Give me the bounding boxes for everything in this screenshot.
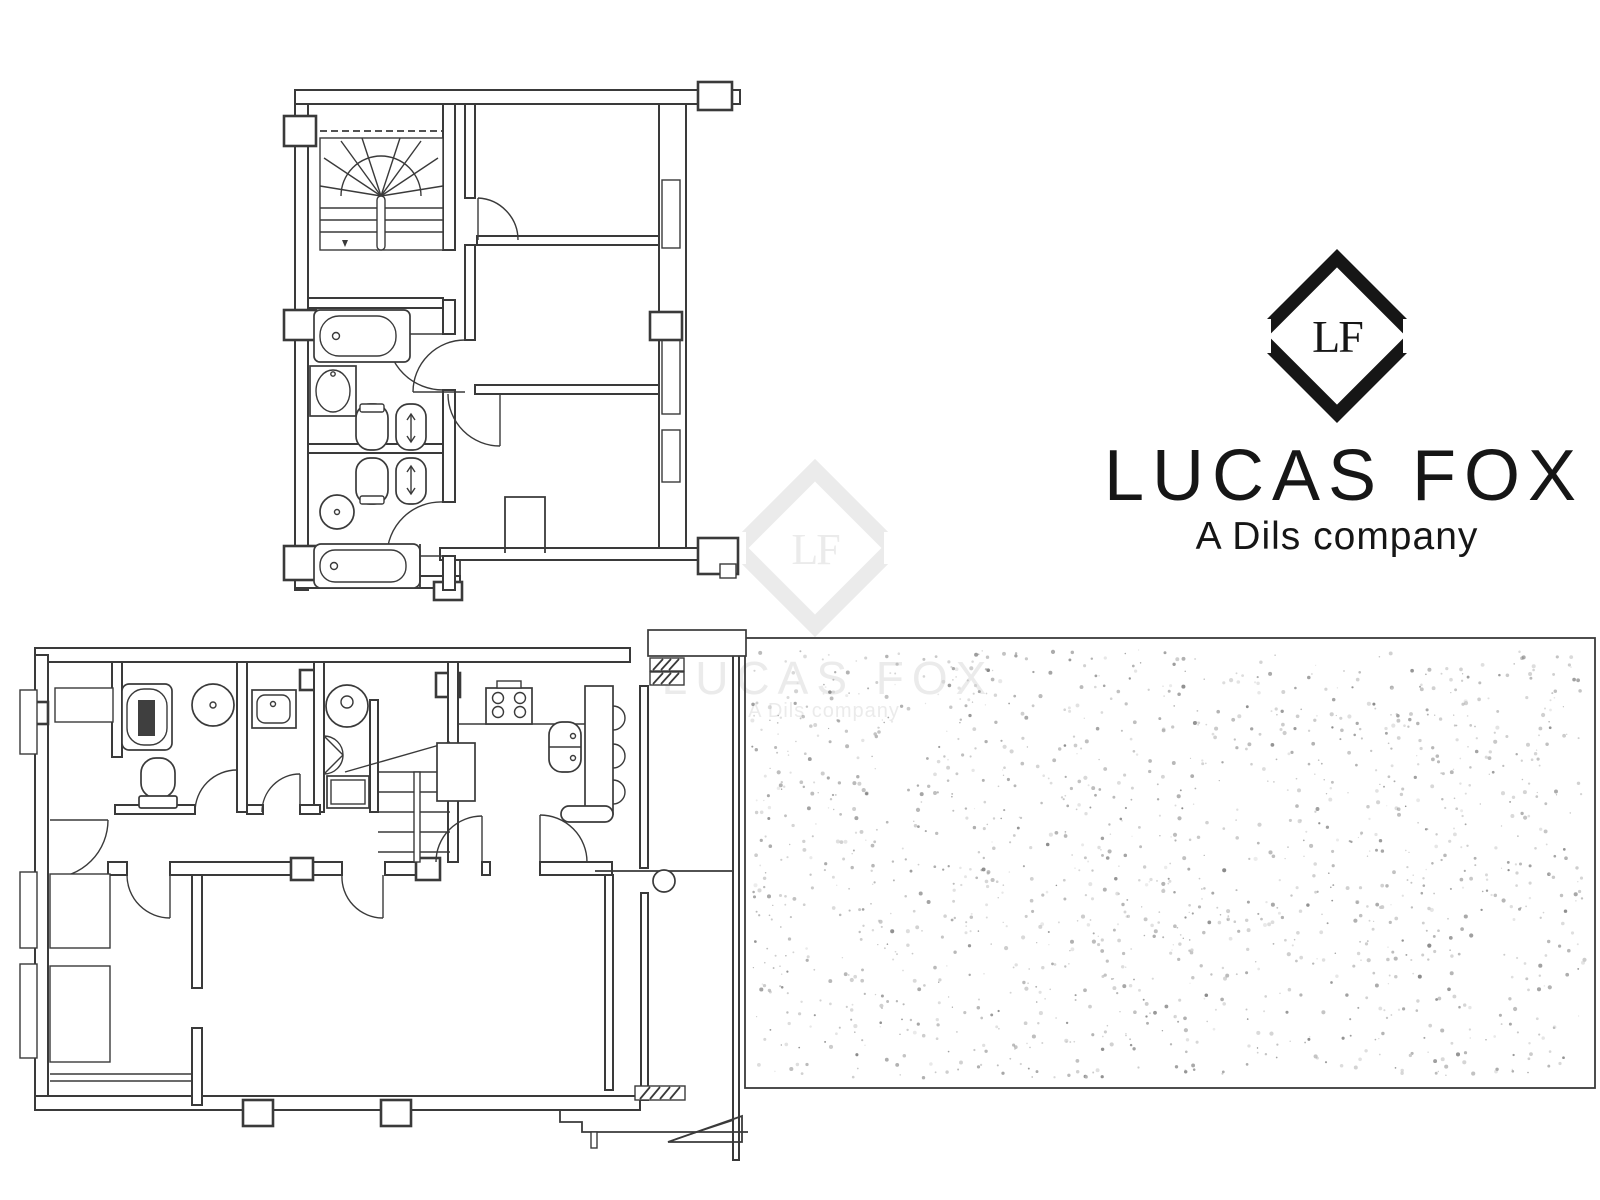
stipple-dot (1519, 862, 1522, 865)
stipple-dot (1093, 932, 1095, 934)
stipple-dot (1267, 780, 1269, 782)
stipple-dot (1469, 1028, 1471, 1030)
stipple-dot (1009, 871, 1011, 873)
stipple-dot (884, 947, 886, 949)
stipple-dot (1453, 832, 1457, 836)
stipple-dot (1512, 796, 1515, 799)
stipple-dot (992, 670, 993, 671)
stipple-dot (786, 856, 788, 858)
stool-icon (613, 744, 625, 768)
stipple-dot (1145, 1002, 1149, 1006)
stipple-dot (1571, 931, 1574, 934)
stipple-dot (1485, 1039, 1486, 1040)
stipple-dot (1068, 963, 1069, 964)
stipple-dot (1029, 1047, 1031, 1049)
stipple-dot (1190, 774, 1194, 778)
stipple-dot (1161, 882, 1165, 886)
stipple-dot (1562, 734, 1566, 738)
stipple-dot (1458, 953, 1461, 956)
stipple-dot (853, 975, 857, 979)
stipple-dot (1420, 747, 1423, 750)
stipple-dot (769, 914, 771, 916)
stipple-dot (1515, 753, 1517, 755)
stipple-dot (1088, 882, 1092, 886)
stipple-dot (1191, 1063, 1195, 1067)
stipple-dot (1058, 747, 1061, 750)
stipple-dot (1246, 1063, 1249, 1066)
stipple-dot (1426, 708, 1429, 711)
stipple-dot (1287, 789, 1289, 791)
stipple-dot (777, 770, 781, 774)
stipple-dot (858, 908, 861, 911)
stipple-dot (817, 735, 819, 737)
stipple-dot (1064, 795, 1066, 797)
stipple-dot (936, 1018, 939, 1021)
stipple-dot (998, 785, 1000, 787)
stipple-dot (1540, 917, 1542, 919)
stipple-dot (1194, 788, 1196, 790)
stipple-dot (1013, 695, 1016, 698)
stipple-dot (1379, 906, 1382, 909)
stipple-dot (768, 705, 772, 709)
stipple-dot (1435, 1072, 1438, 1075)
stipple-dot (1177, 927, 1179, 929)
stipple-dot (1001, 1072, 1004, 1075)
stipple-dot (1133, 720, 1137, 724)
stipple-dot (1414, 776, 1417, 779)
stipple-dot (1056, 885, 1058, 887)
stipple-dot (1478, 681, 1481, 684)
stipple-dot (983, 973, 985, 975)
stipple-dot (984, 1050, 987, 1053)
stipple-dot (1098, 936, 1099, 937)
stipple-dot (848, 974, 849, 975)
stipple-dot (1520, 812, 1523, 815)
stipple-dot (1175, 805, 1177, 807)
stipple-dot (978, 851, 980, 853)
stipple-dot (1183, 1016, 1187, 1020)
stipple-dot (943, 914, 947, 918)
stipple-dot (802, 848, 806, 852)
stipple-dot (1229, 937, 1233, 941)
stipple-dot (753, 883, 757, 887)
stipple-dot (1462, 673, 1463, 674)
stipple-dot (1267, 922, 1271, 926)
stipple-dot (836, 885, 837, 886)
stipple-dot (1013, 834, 1016, 837)
stipple-dot (1101, 837, 1104, 840)
stipple-dot (1529, 882, 1532, 885)
stipple-dot (830, 798, 832, 800)
stipple-dot (1461, 680, 1463, 682)
appliance (327, 776, 369, 808)
stipple-dot (1401, 787, 1404, 790)
stipple-dot (973, 693, 975, 695)
stipple-dot (1212, 733, 1215, 736)
stipple-dot (1318, 822, 1320, 824)
stipple-dot (837, 719, 840, 722)
stipple-dot (977, 1065, 980, 1068)
stipple-dot (1427, 958, 1429, 960)
stipple-dot (1482, 891, 1484, 893)
stipple-dot (1342, 1037, 1345, 1040)
stipple-dot (1054, 963, 1057, 966)
stipple-dot (1226, 909, 1230, 913)
stipple-dot (766, 948, 768, 950)
stipple-dot (872, 883, 874, 885)
stipple-dot (1428, 1024, 1432, 1028)
stipple-dot (973, 826, 976, 829)
stipple-dot (784, 814, 787, 817)
stipple-dot (1387, 946, 1388, 947)
stipple-dot (1031, 1076, 1033, 1078)
stipple-dot (862, 788, 866, 792)
stipple-dot (1026, 1043, 1028, 1045)
stipple-dot (1376, 800, 1380, 804)
stipple-dot (1225, 974, 1229, 978)
logo-diamond-gap (1245, 319, 1271, 353)
stipple-dot (1125, 1035, 1127, 1037)
stipple-dot (1168, 878, 1170, 880)
stipple-dot (1490, 894, 1492, 896)
stipple-dot (1465, 823, 1467, 825)
stipple-dot (1236, 973, 1238, 975)
stipple-dot (1103, 685, 1106, 688)
stipple-dot (1163, 888, 1165, 890)
stipple-dot (1374, 833, 1377, 836)
stipple-dot (829, 1045, 833, 1049)
stipple-dot (1174, 839, 1176, 841)
stipple-dot (1278, 912, 1281, 915)
stipple-dot (1357, 952, 1360, 955)
stipple-dot (1190, 758, 1191, 759)
stipple-dot (1417, 822, 1419, 824)
stipple-dot (1547, 1065, 1550, 1068)
stipple-dot (1453, 769, 1454, 770)
stipple-dot (1186, 1038, 1189, 1041)
stipple-dot (813, 969, 815, 971)
stipple-dot (764, 962, 766, 964)
stipple-dot (784, 895, 787, 898)
stipple-dot (913, 1031, 917, 1035)
stipple-dot (1444, 1065, 1448, 1069)
stipple-dot (990, 943, 991, 944)
stipple-dot (1511, 976, 1514, 979)
stipple-dot (1197, 721, 1200, 724)
stipple-dot (756, 701, 759, 704)
stipple-dot (978, 930, 979, 931)
stipple-dot (796, 1063, 799, 1066)
stipple-dot (1459, 668, 1463, 672)
stipple-dot (935, 1071, 937, 1073)
stipple-dot (935, 655, 938, 658)
stipple-dot (853, 850, 855, 852)
stipple-dot (790, 916, 792, 918)
stipple-dot (781, 973, 782, 974)
stipple-dot (755, 811, 758, 814)
watermark: LF LUCAS FOX A Dils company (662, 470, 995, 722)
stipple-dot (1313, 719, 1316, 722)
stipple-dot (1138, 989, 1141, 992)
stipple-dot (871, 864, 875, 868)
stipple-dot (1339, 738, 1341, 740)
stipple-dot (1369, 850, 1370, 851)
stipple-dot (1116, 690, 1120, 694)
stipple-dot (850, 1019, 852, 1021)
stipple-dot (959, 867, 962, 870)
stipple-dot (1130, 799, 1132, 801)
stipple-dot (1065, 831, 1067, 833)
stipple-dot (1394, 975, 1397, 978)
stipple-dot (1101, 1048, 1104, 1051)
stipple-dot (1350, 841, 1352, 843)
stipple-dot (1581, 961, 1585, 965)
stipple-dot (1041, 1042, 1043, 1044)
stipple-dot (1427, 714, 1429, 716)
stipple-dot (951, 796, 953, 798)
stipple-dot (1145, 1015, 1147, 1017)
stipple-dot (1070, 787, 1073, 790)
stipple-dot (991, 678, 995, 682)
stipple-dot (1367, 940, 1369, 942)
stipple-dot (1051, 963, 1054, 966)
stipple-dot (1356, 678, 1360, 682)
staircase (320, 104, 455, 250)
stipple-dot (1554, 790, 1558, 794)
stipple-dot (1318, 759, 1320, 761)
stipple-dot (1263, 923, 1267, 927)
stipple-dot (822, 658, 824, 660)
stool-icon (613, 706, 625, 730)
stipple-dot (760, 729, 762, 731)
stipple-dot (1350, 1035, 1352, 1037)
stipple-dot (1038, 925, 1042, 929)
stipple-dot (857, 782, 861, 786)
stipple-dot (1288, 988, 1292, 992)
stipple-dot (1565, 973, 1569, 977)
stipple-dot (845, 744, 849, 748)
stipple-dot (1564, 856, 1568, 860)
stipple-dot (955, 667, 959, 671)
stipple-dot (865, 792, 868, 795)
stipple-dot (1314, 773, 1315, 774)
stipple-dot (827, 776, 830, 779)
stipple-dot (1281, 916, 1284, 919)
stipple-dot (1200, 964, 1203, 967)
stipple-dot (925, 830, 927, 832)
stipple-dot (896, 1000, 898, 1002)
stipple-dot (1331, 726, 1333, 728)
stipple-dot (1437, 929, 1440, 932)
stipple-dot (898, 652, 901, 655)
stipple-dot (1152, 978, 1154, 980)
stipple-dot (1462, 887, 1464, 889)
stipple-dot (1430, 908, 1434, 912)
stipple-dot (1281, 690, 1285, 694)
stipple-dot (1528, 782, 1530, 784)
stipple-dot (1517, 835, 1519, 837)
stipple-dot (1469, 933, 1473, 937)
stipple-dot (1458, 1006, 1461, 1009)
stipple-dot (1321, 1010, 1325, 1014)
stipple-dot (1375, 769, 1377, 771)
stipple-dot (1450, 1042, 1453, 1045)
stipple-dot (1391, 1014, 1393, 1016)
stipple-dot (1549, 726, 1552, 729)
stipple-dot (951, 793, 953, 795)
stipple-dot (945, 1070, 948, 1073)
stipple-dot (1130, 1044, 1132, 1046)
stipple-dot (752, 891, 755, 894)
stipple-dot (1513, 663, 1515, 665)
stipple-dot (1547, 940, 1550, 943)
stipple-dot (1101, 938, 1104, 941)
stipple-dot (1281, 710, 1284, 713)
stipple-dot (953, 883, 955, 885)
stipple-dot (1235, 819, 1236, 820)
stipple-dot (1516, 957, 1518, 959)
stipple-dot (1507, 869, 1509, 871)
stipple-dot (1211, 892, 1214, 895)
stipple-dot (1512, 1070, 1515, 1073)
stipple-dot (1041, 894, 1044, 897)
stipple-dot (1153, 1011, 1157, 1015)
stipple-dot (753, 967, 754, 968)
stipple-dot (1367, 958, 1371, 962)
stipple-dot (1489, 750, 1492, 753)
stipple-dot (1541, 713, 1545, 717)
stipple-dot (1183, 938, 1184, 939)
stipple-dot (1316, 715, 1318, 717)
stipple-dot (803, 903, 806, 906)
stipple-dot (994, 694, 997, 697)
stipple-dot (1311, 742, 1315, 746)
stipple-dot (1539, 828, 1542, 831)
stipple-dot (1190, 948, 1193, 951)
stipple-dot (1366, 805, 1369, 808)
stipple-dot (974, 808, 975, 809)
stipple-dot (1182, 657, 1186, 661)
stipple-dot (1292, 944, 1294, 946)
stipple-dot (787, 992, 789, 994)
stipple-dot (1536, 749, 1537, 750)
stipple-dot (1101, 1075, 1104, 1078)
stipple-dot (1237, 714, 1241, 718)
stipple-dot (1527, 989, 1530, 992)
stipple-dot (1578, 737, 1580, 739)
stipple-dot (885, 1058, 889, 1062)
stipple-dot (1010, 992, 1012, 994)
stipple-dot (781, 781, 783, 783)
stipple-dot (1091, 786, 1095, 790)
stipple-dot (1049, 989, 1051, 991)
stipple-dot (1131, 787, 1134, 790)
stipple-dot (805, 947, 808, 950)
stipple-dot (983, 857, 985, 859)
stipple-dot (1509, 1023, 1512, 1026)
stipple-dot (1092, 940, 1096, 944)
stipple-dot (1133, 979, 1135, 981)
stipple-dot (1419, 686, 1421, 688)
stipple-dot (1581, 897, 1583, 899)
stipple-dot (941, 680, 945, 684)
stipple-dot (1406, 866, 1408, 868)
stipple-dot (834, 671, 836, 673)
stipple-dot (833, 809, 834, 810)
stipple-dot (1437, 760, 1440, 763)
stipple-dot (804, 752, 807, 755)
stipple-dot (1529, 897, 1531, 899)
stipple-dot (1092, 1072, 1094, 1074)
stipple-dot (1517, 1031, 1519, 1033)
stipple-dot (961, 753, 964, 756)
stipple-dot (1397, 813, 1401, 817)
stipple-dot (937, 760, 941, 764)
stipple-dot (933, 966, 937, 970)
stipple-dot (1357, 1007, 1359, 1009)
stipple-dot (1328, 872, 1330, 874)
stipple-dot (1247, 1018, 1249, 1020)
stipple-dot (953, 951, 956, 954)
stipple-dot (1499, 1014, 1502, 1017)
stipple-dot (1279, 879, 1281, 881)
stipple-dot (1285, 1011, 1288, 1014)
stipple-dot (899, 1034, 900, 1035)
stipple-dot (779, 965, 781, 967)
stipple-dot (1234, 738, 1236, 740)
stipple-dot (1477, 698, 1481, 702)
stipple-dot (751, 746, 753, 748)
stipple-dot (1078, 869, 1080, 871)
stipple-dot (1076, 1070, 1079, 1073)
stipple-dot (757, 1063, 761, 1067)
stipple-dot (1485, 873, 1488, 876)
stipple-dot (1538, 727, 1542, 731)
stipple-dot (1149, 881, 1151, 883)
stipple-dot (760, 839, 763, 842)
stipple-dot (773, 967, 775, 969)
stipple-dot (917, 987, 921, 991)
logo-diamond-gap (1403, 319, 1429, 353)
stipple-dot (959, 1061, 963, 1065)
stipple-dot (1130, 948, 1132, 950)
stipple-dot (860, 938, 863, 941)
stipple-dot (753, 895, 756, 898)
stipple-dot (1430, 784, 1434, 788)
stipple-dot (1485, 756, 1488, 759)
stipple-dot (1467, 676, 1470, 679)
stipple-dot (943, 755, 945, 757)
stipple-dot (1487, 697, 1489, 699)
stipple-dot (1204, 855, 1205, 856)
stipple-dot (829, 1003, 832, 1006)
stipple-dot (1203, 887, 1206, 890)
stipple-dot (948, 1051, 950, 1053)
stipple-dot (1462, 1060, 1466, 1064)
stipple-dot (1276, 907, 1278, 909)
stipple-dot (1416, 798, 1420, 802)
stipple-dot (1210, 973, 1212, 975)
stipple-dot (1029, 846, 1032, 849)
stipple-dot (832, 906, 836, 910)
stipple-dot (762, 983, 763, 984)
stipple-dot (1024, 716, 1028, 720)
stipple-dot (1017, 827, 1020, 830)
stipple-dot (1554, 697, 1556, 699)
stipple-dot (1359, 941, 1361, 943)
stipple-dot (1257, 823, 1261, 827)
stipple-dot (1123, 774, 1126, 777)
